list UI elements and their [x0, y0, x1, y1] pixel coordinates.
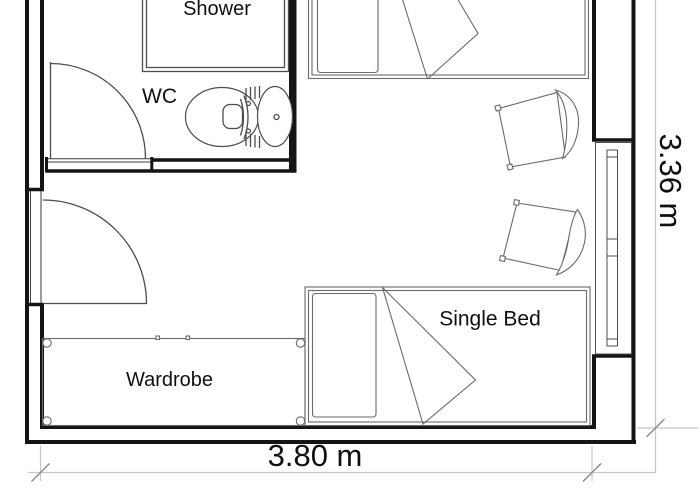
chair-upper-leg [495, 105, 501, 111]
floor-plan-canvas: 3.80 m 3.36 m [0, 0, 700, 500]
wc-label: WC [142, 85, 177, 108]
wardrobe-handle2 [186, 336, 190, 340]
wardrobe-corner2 [296, 339, 304, 347]
bathroom-right-wall [289, 0, 297, 172]
chair-lower-leg2 [500, 256, 506, 262]
toilet-bolt-top [247, 102, 251, 106]
wardrobe-handle [156, 336, 160, 340]
chair-lower-leg [514, 200, 520, 206]
chair-upper-leg2 [507, 164, 513, 170]
wardrobe-corner4 [296, 417, 304, 425]
height-dimension-label: 3.36 m [653, 134, 688, 229]
shower-label: Shower [183, 0, 251, 20]
toilet-bolt-bottom [247, 129, 251, 133]
single-bed-label: Single Bed [439, 308, 541, 331]
toilet-cistern [258, 87, 293, 147]
toilet [186, 86, 293, 148]
wardrobe-label: Wardrobe [126, 369, 213, 391]
wardrobe-corner [43, 339, 51, 347]
floor-plan: 3.80 m 3.36 m [0, 0, 700, 500]
wardrobe-corner3 [43, 417, 51, 425]
